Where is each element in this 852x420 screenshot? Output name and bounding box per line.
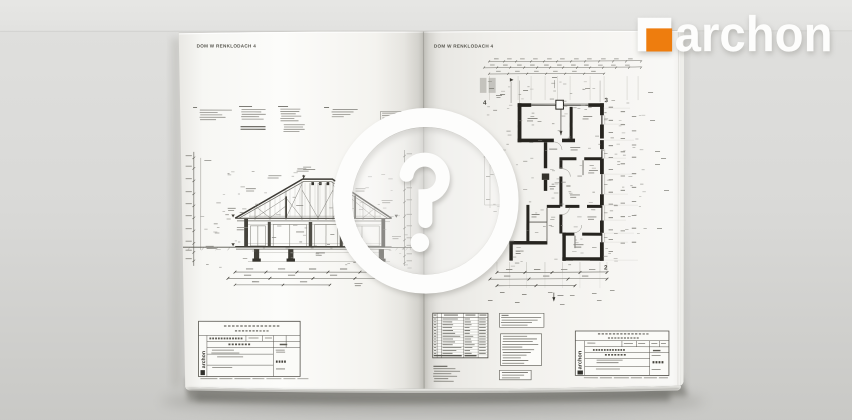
svg-text:DOM W RENKLODACH 4: DOM W RENKLODACH 4 [434,44,494,49]
svg-text:archon: archon [675,6,833,62]
svg-text:archon: archon [201,351,207,368]
svg-text:3: 3 [604,97,608,104]
svg-text:4: 4 [483,100,487,107]
svg-text:2: 2 [604,264,608,271]
svg-text:DOM W RENKLODACH 4: DOM W RENKLODACH 4 [197,43,257,48]
svg-text:archon: archon [577,350,584,369]
